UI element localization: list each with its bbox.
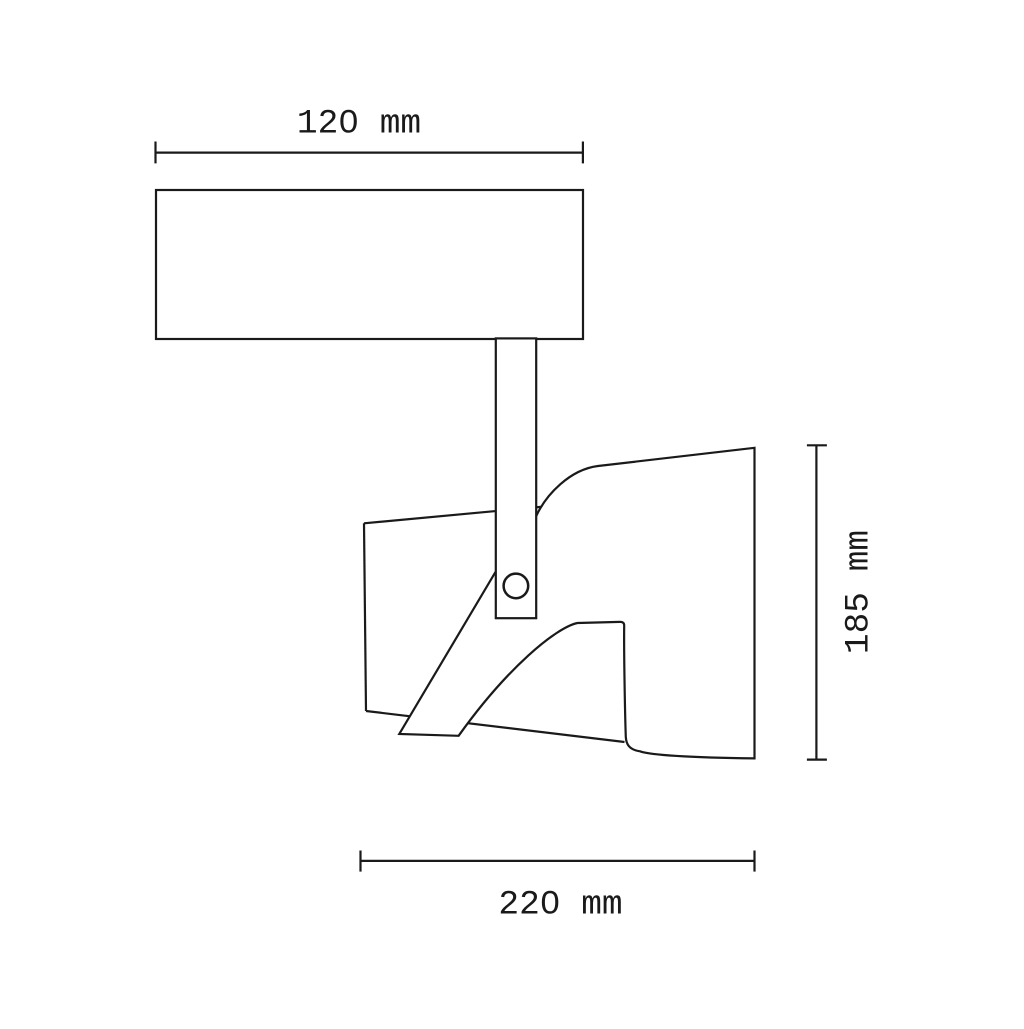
svg-text:185 mm: 185 mm (840, 530, 879, 654)
svg-text:220 mm: 220 mm (498, 886, 622, 925)
svg-text:120 mm: 120 mm (297, 105, 421, 144)
